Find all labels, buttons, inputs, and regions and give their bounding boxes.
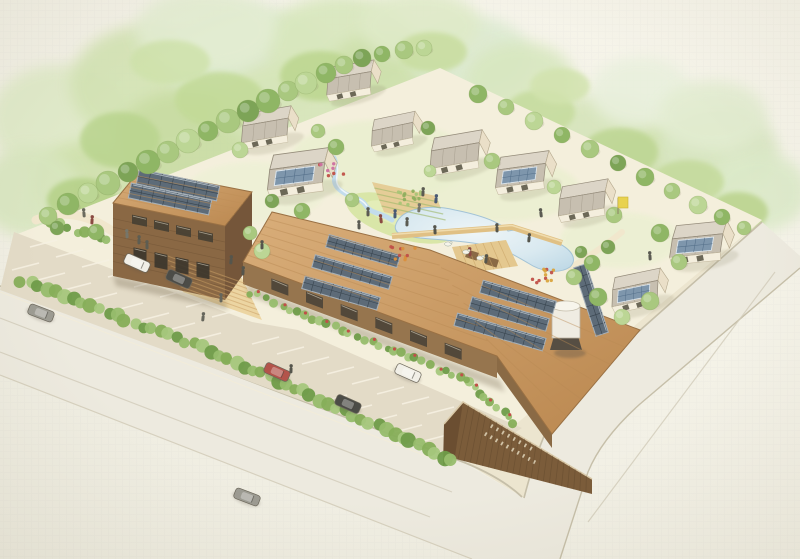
illustration-canvas bbox=[0, 0, 800, 559]
vignette bbox=[0, 0, 800, 559]
watercolor-illustration bbox=[0, 0, 800, 559]
